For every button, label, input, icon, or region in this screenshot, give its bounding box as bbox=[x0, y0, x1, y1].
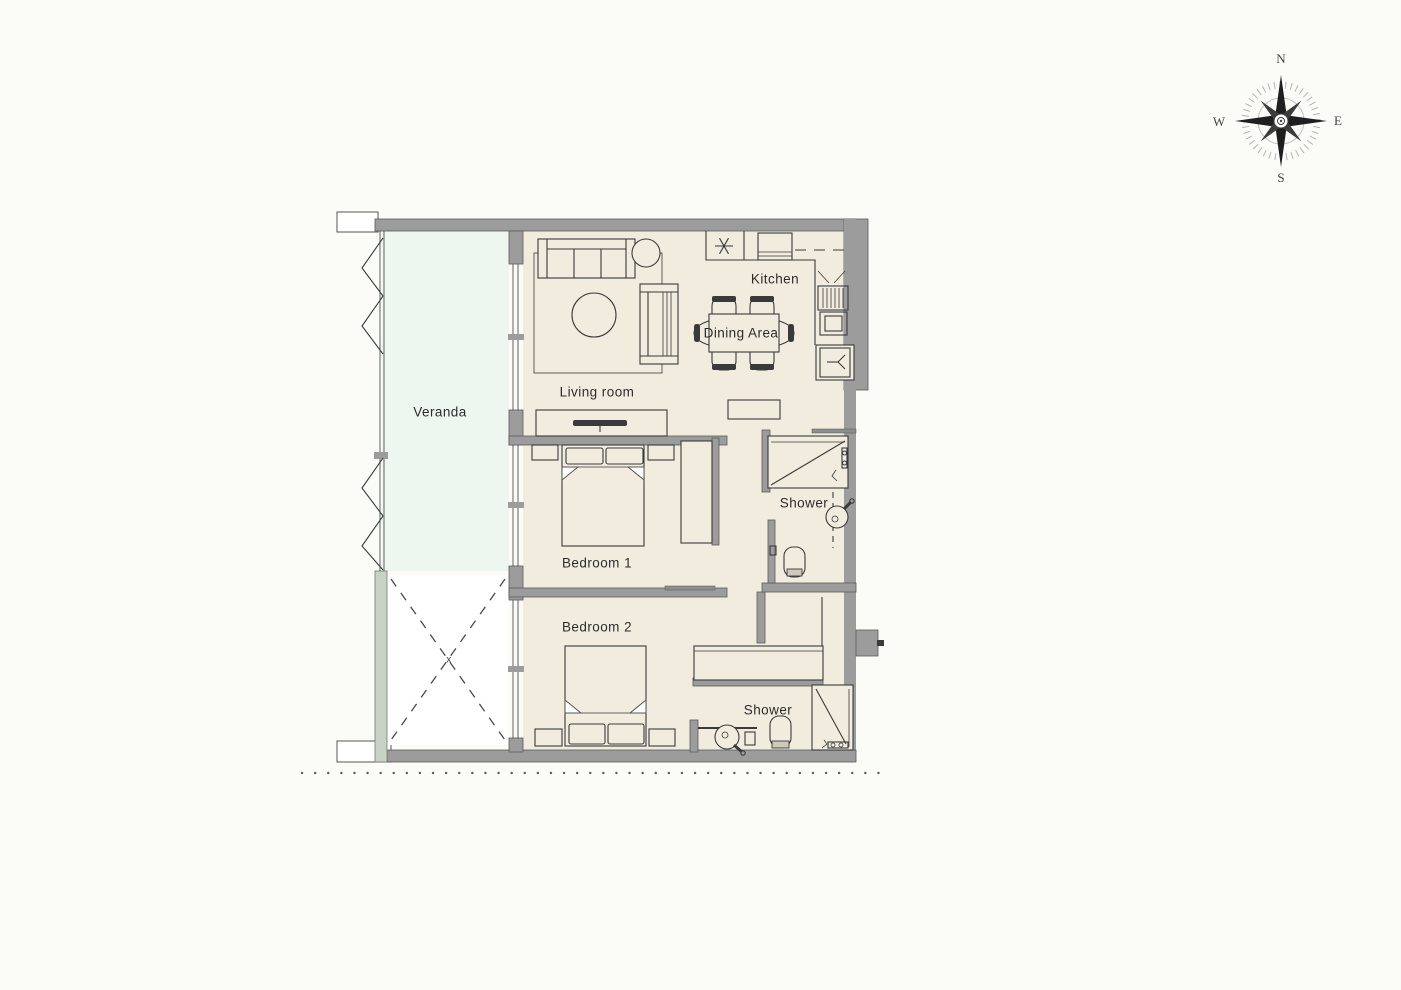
veranda-label: Veranda bbox=[413, 405, 466, 420]
wc1-partition-wall bbox=[768, 520, 775, 583]
floor-plan-page: Veranda Living room Kitchen Dining Area … bbox=[0, 0, 1401, 990]
bedroom2-window bbox=[508, 600, 524, 738]
void-x-label: x bbox=[446, 655, 451, 666]
side-table bbox=[632, 239, 660, 267]
dining-area-label: Dining Area bbox=[704, 326, 779, 341]
compass-east-label: E bbox=[1334, 113, 1342, 129]
floor-plan-drawing bbox=[0, 0, 1401, 990]
dining-end-seat bbox=[694, 324, 700, 342]
compass-south-label: S bbox=[1277, 170, 1284, 186]
sofa bbox=[538, 239, 635, 278]
shower-tray-1 bbox=[768, 436, 848, 488]
wardrobe bbox=[681, 441, 712, 543]
toilet-1 bbox=[784, 547, 805, 577]
kitchen-label: Kitchen bbox=[751, 272, 799, 287]
hall-partition-wall bbox=[757, 592, 765, 643]
compass-rose bbox=[1235, 75, 1327, 167]
shower-tray-2 bbox=[812, 685, 853, 750]
exterior-planter-top-left bbox=[337, 212, 378, 232]
shower1-top-ledge bbox=[812, 429, 856, 433]
fridge-icon bbox=[816, 345, 854, 380]
bottom-wall bbox=[387, 750, 856, 762]
coffee-table bbox=[572, 293, 616, 337]
dining-end-seat bbox=[788, 324, 794, 342]
entrance-knob bbox=[877, 640, 884, 646]
bedroom-2-label: Bedroom 2 bbox=[562, 620, 632, 635]
double-bed-2 bbox=[565, 646, 646, 746]
left-terrace-wall bbox=[375, 571, 387, 762]
entrance-pilaster bbox=[856, 630, 878, 656]
separator-block-top bbox=[509, 231, 523, 264]
shower-2-label: Shower bbox=[744, 703, 792, 718]
shower1-bottom-wall bbox=[762, 583, 856, 592]
shower-1-label: Shower bbox=[780, 496, 828, 511]
bedroom1-ledge bbox=[665, 586, 715, 590]
wardrobe-end-wall bbox=[712, 438, 719, 545]
hall-console bbox=[728, 400, 780, 419]
tv-console bbox=[536, 410, 667, 436]
nightstand bbox=[649, 729, 675, 746]
living-veranda-window bbox=[508, 264, 524, 410]
bedroom2-post bbox=[690, 720, 698, 752]
right-wall bbox=[844, 219, 856, 762]
tv-icon bbox=[573, 420, 627, 426]
nightstand bbox=[535, 729, 562, 746]
compass-north-label: N bbox=[1276, 51, 1285, 67]
toilet-2 bbox=[770, 716, 791, 748]
living-room-label: Living room bbox=[560, 385, 635, 400]
veranda-floor bbox=[382, 231, 509, 571]
nightstand bbox=[648, 445, 674, 460]
bedroom-1-label: Bedroom 1 bbox=[562, 556, 632, 571]
bedroom1-veranda-window bbox=[508, 445, 524, 566]
compass-west-label: W bbox=[1213, 114, 1225, 130]
separator-block-bottom bbox=[509, 738, 523, 752]
chaise-sofa bbox=[640, 284, 678, 364]
top-wall bbox=[375, 219, 856, 231]
nightstand bbox=[532, 445, 558, 460]
double-bed-1 bbox=[562, 445, 644, 546]
